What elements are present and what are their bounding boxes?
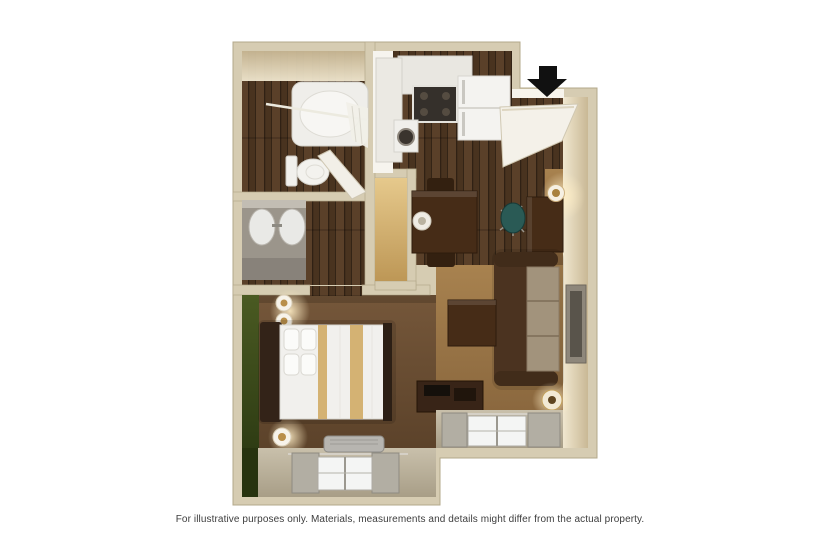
bed-runner [318,325,327,419]
dishwasher-door [398,129,414,145]
desk [527,197,563,252]
curtain [372,453,399,493]
office-chair [501,203,525,233]
headboard [260,322,282,422]
burner [442,108,450,116]
living-window-area [436,410,563,448]
sink [279,209,305,245]
vanity-area [242,200,306,280]
closet-wall-bottom [375,281,416,290]
bathroom-back-wall [242,51,368,81]
bed-runner [350,325,363,419]
curtain [528,413,560,447]
curtain [442,413,467,447]
pillow [301,329,316,350]
faucet [272,224,282,227]
coffee-table [448,300,496,346]
curtain [292,453,319,493]
footboard [383,323,392,421]
pillow [301,354,316,375]
burner [420,108,428,116]
tv [424,385,450,396]
sofa-back [494,252,530,386]
disclaimer-text: For illustrative purposes only. Material… [0,514,820,525]
sofa-arm [494,252,558,267]
sink [249,209,275,245]
closet [375,178,407,281]
pillow [284,329,299,350]
pillow [284,354,299,375]
sofa-cushions [527,267,559,371]
burner [442,92,450,100]
door-opening [512,89,564,98]
burner [420,92,428,100]
toilet-tank [286,156,297,186]
bedroom-doorway [310,286,362,296]
stove [413,86,457,122]
floor-plan-page: For illustrative purposes only. Material… [0,0,820,560]
floor-plan-rendering [0,0,820,560]
